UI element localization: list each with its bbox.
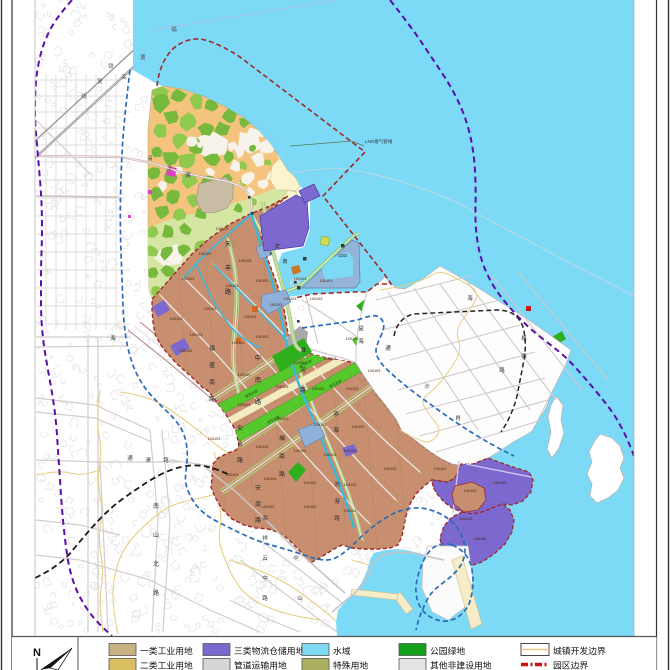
svg-text:管道运输用地: 管道运输用地 [234, 660, 287, 670]
svg-text:三类物流仓储用地: 三类物流仓储用地 [234, 645, 305, 656]
svg-text:云: 云 [262, 555, 268, 562]
svg-text:路: 路 [262, 594, 268, 602]
svg-text:100103: 100103 [264, 477, 277, 481]
svg-text:滨: 滨 [274, 242, 279, 250]
svg-text:100103: 100103 [204, 307, 217, 311]
svg-text:100103: 100103 [284, 297, 297, 301]
svg-text:海: 海 [467, 294, 473, 302]
svg-text:100103: 100103 [324, 453, 337, 457]
svg-text:路: 路 [153, 589, 159, 597]
svg-text:路: 路 [279, 470, 285, 478]
svg-text:100103: 100103 [276, 417, 289, 421]
svg-text:山: 山 [153, 531, 159, 539]
svg-text:100103: 100103 [294, 277, 307, 281]
svg-text:100103: 100103 [238, 403, 251, 407]
svg-text:南: 南 [255, 376, 261, 384]
svg-text:中: 中 [255, 354, 261, 362]
svg-text:100103: 100103 [474, 537, 487, 541]
svg-text:通: 通 [385, 344, 391, 352]
svg-text:二类工业用地: 二类工业用地 [140, 660, 193, 670]
svg-text:复: 复 [97, 77, 103, 85]
svg-text:福: 福 [171, 25, 177, 33]
svg-text:南: 南 [153, 502, 159, 510]
svg-text:100103: 100103 [232, 341, 245, 345]
svg-text:天: 天 [225, 241, 231, 248]
svg-text:路: 路 [300, 386, 306, 394]
svg-text:100103: 100103 [256, 335, 269, 339]
svg-text:山: 山 [297, 594, 303, 602]
svg-text:南: 南 [209, 378, 215, 386]
svg-text:100103: 100103 [238, 373, 251, 377]
svg-text:港: 港 [334, 497, 340, 505]
svg-text:100103: 100103 [434, 467, 447, 471]
svg-text:格: 格 [521, 334, 527, 342]
svg-text:100103: 100103 [199, 252, 212, 256]
svg-text:城镇开发边界: 城镇开发边界 [553, 645, 606, 656]
svg-text:淮: 淮 [300, 346, 306, 354]
svg-text:100103: 100103 [344, 509, 357, 513]
svg-text:中: 中 [262, 574, 268, 582]
svg-text:路: 路 [255, 516, 261, 524]
svg-text:水域: 水域 [333, 645, 351, 656]
svg-text:公园绿地: 公园绿地 [430, 645, 465, 656]
svg-text:路: 路 [225, 288, 232, 296]
svg-text:100103: 100103 [320, 279, 333, 283]
svg-text:LNG接气管线: LNG接气管线 [365, 138, 393, 145]
svg-text:北: 北 [167, 164, 173, 172]
svg-text:100103: 100103 [324, 357, 337, 361]
svg-text:100103: 100103 [244, 315, 257, 319]
svg-text:沙: 沙 [424, 383, 430, 390]
svg-text:100103: 100103 [344, 483, 357, 487]
svg-text:一类工业用地: 一类工业用地 [140, 645, 193, 656]
svg-text:100103: 100103 [226, 473, 239, 477]
svg-text:特殊用地: 特殊用地 [333, 660, 368, 670]
svg-text:海: 海 [333, 426, 339, 434]
svg-text:路: 路 [163, 456, 169, 464]
svg-text:100103: 100103 [314, 423, 327, 427]
svg-text:南: 南 [279, 452, 285, 460]
svg-text:100103: 100103 [464, 489, 477, 493]
svg-text:丰: 丰 [225, 264, 231, 272]
svg-text:合: 合 [237, 440, 243, 448]
svg-text:澤: 澤 [145, 456, 151, 464]
svg-text:100103: 100103 [226, 284, 239, 288]
svg-text:高: 高 [121, 73, 127, 81]
svg-text:100103: 100103 [368, 369, 381, 373]
svg-text:通: 通 [127, 454, 133, 462]
svg-text:其他非建设用地: 其他非建设用地 [430, 660, 492, 670]
svg-text:西: 西 [521, 353, 527, 360]
svg-text:路: 路 [185, 171, 191, 179]
svg-text:福: 福 [209, 344, 215, 352]
svg-text:100103: 100103 [180, 349, 193, 353]
svg-text:北: 北 [153, 560, 159, 568]
svg-text:路: 路 [209, 395, 215, 403]
svg-text:南: 南 [282, 257, 287, 265]
svg-text:南: 南 [255, 500, 261, 508]
svg-text:100103: 100103 [239, 259, 252, 263]
svg-text:肖: 肖 [455, 414, 461, 422]
svg-text:池: 池 [334, 480, 340, 488]
svg-text:益: 益 [358, 324, 364, 332]
svg-text:100103: 100103 [294, 361, 307, 365]
svg-text:100103: 100103 [256, 445, 269, 449]
svg-text:路: 路 [499, 366, 505, 374]
svg-text:厦: 厦 [140, 54, 146, 61]
svg-text:线: 线 [81, 92, 87, 100]
svg-text:铁: 铁 [108, 62, 114, 70]
svg-text:100103: 100103 [262, 505, 275, 509]
svg-text:路: 路 [255, 398, 262, 406]
svg-text:N: N [33, 647, 41, 659]
svg-text:海: 海 [110, 334, 116, 342]
svg-text:路: 路 [237, 456, 243, 464]
svg-text:100103: 100103 [304, 481, 317, 485]
svg-text:滨: 滨 [333, 410, 339, 418]
svg-text:盛: 盛 [209, 361, 215, 369]
svg-text:海: 海 [358, 337, 364, 345]
svg-text:园区边界: 园区边界 [553, 661, 588, 670]
svg-text:1202: 1202 [338, 253, 348, 258]
svg-text:100103: 100103 [312, 387, 325, 391]
svg-text:100103: 100103 [384, 467, 397, 471]
svg-text:河: 河 [300, 366, 306, 374]
svg-text:100103: 100103 [310, 297, 323, 301]
svg-text:100103: 100103 [208, 437, 221, 441]
svg-text:祥: 祥 [262, 534, 268, 542]
svg-text:路: 路 [334, 514, 340, 522]
svg-text:100103: 100103 [190, 333, 203, 337]
svg-text:100103: 100103 [346, 387, 359, 391]
svg-text:100103: 100103 [276, 385, 289, 389]
svg-text:100103: 100103 [460, 517, 473, 521]
svg-text:中: 中 [293, 554, 299, 562]
svg-text:100103: 100103 [216, 227, 229, 231]
svg-text:100103: 100103 [182, 277, 195, 281]
svg-text:100103: 100103 [304, 505, 317, 509]
svg-text:100103: 100103 [256, 279, 269, 283]
svg-text:埔: 埔 [279, 434, 285, 442]
svg-text:100103: 100103 [170, 317, 183, 321]
svg-text:海: 海 [262, 514, 268, 522]
svg-text:100103: 100103 [346, 337, 359, 341]
svg-text:100103: 100103 [344, 449, 357, 453]
svg-text:100103: 100103 [352, 425, 365, 429]
svg-text:清: 清 [147, 154, 153, 162]
svg-text:天: 天 [255, 485, 261, 492]
svg-text:安: 安 [237, 424, 243, 432]
svg-text:100103: 100103 [270, 303, 283, 307]
svg-text:100103: 100103 [494, 481, 507, 485]
svg-text:100103: 100103 [294, 449, 307, 453]
